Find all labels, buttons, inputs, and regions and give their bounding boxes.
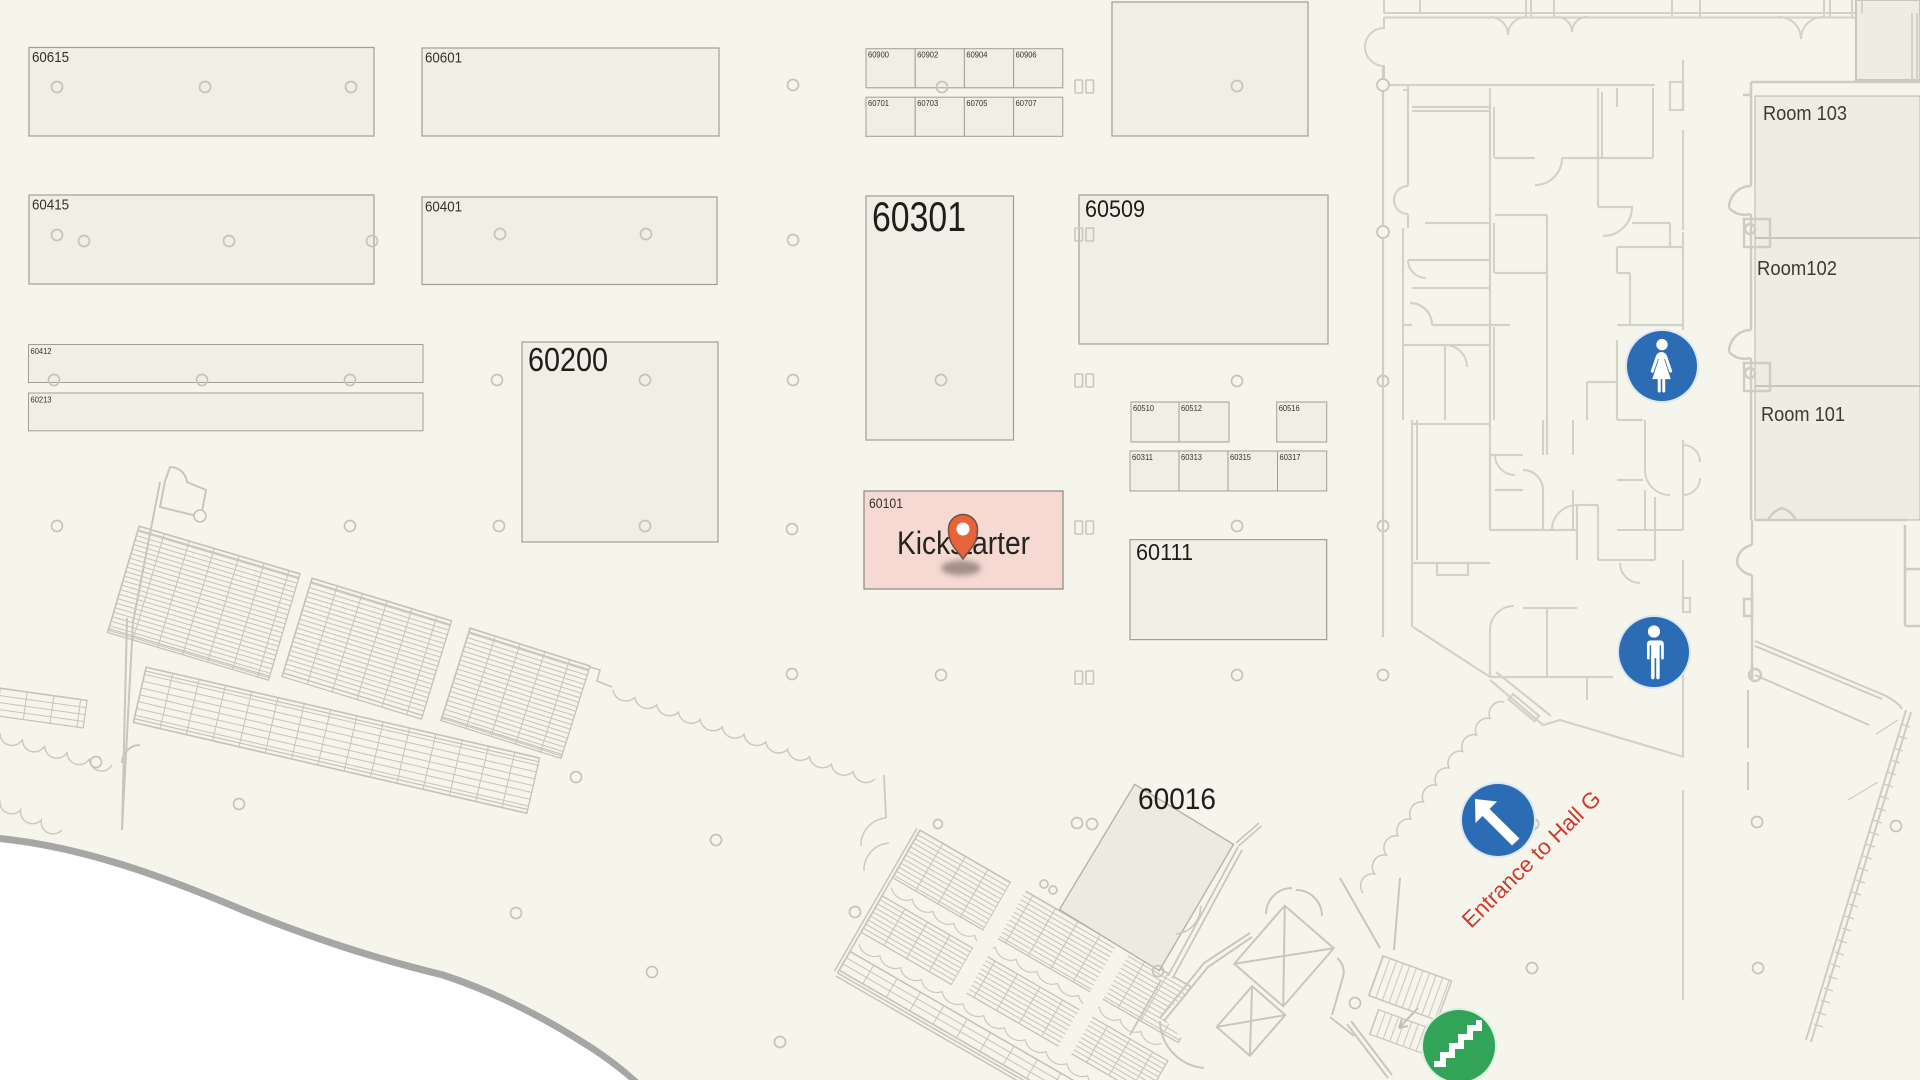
svg-text:60900: 60900 [868, 50, 889, 60]
svg-text:60701: 60701 [868, 98, 889, 108]
svg-text:60509: 60509 [1085, 196, 1145, 223]
svg-text:Room102: Room102 [1757, 258, 1837, 280]
svg-text:60016: 60016 [1138, 783, 1216, 816]
svg-text:60705: 60705 [966, 98, 987, 108]
svg-text:60412: 60412 [31, 346, 52, 356]
svg-text:60315: 60315 [1230, 452, 1251, 462]
svg-text:60510: 60510 [1133, 403, 1154, 413]
svg-text:60904: 60904 [966, 50, 987, 60]
svg-text:60311: 60311 [1132, 452, 1153, 462]
svg-text:60703: 60703 [917, 98, 938, 108]
svg-text:60516: 60516 [1279, 403, 1300, 413]
svg-text:60902: 60902 [917, 50, 938, 60]
svg-text:60906: 60906 [1016, 50, 1037, 60]
svg-text:Room 103: Room 103 [1763, 103, 1847, 125]
svg-text:60707: 60707 [1016, 98, 1037, 108]
svg-text:60313: 60313 [1181, 452, 1202, 462]
svg-text:60200: 60200 [528, 341, 608, 378]
svg-text:60615: 60615 [32, 49, 69, 66]
svg-text:60512: 60512 [1181, 403, 1202, 413]
svg-text:60101: 60101 [869, 496, 903, 511]
svg-text:Room 101: Room 101 [1761, 404, 1845, 426]
svg-text:60301: 60301 [872, 193, 966, 240]
svg-text:60213: 60213 [31, 395, 52, 405]
svg-text:60111: 60111 [1136, 539, 1193, 565]
svg-text:60601: 60601 [425, 50, 462, 67]
svg-text:60317: 60317 [1280, 452, 1301, 462]
svg-text:60401: 60401 [425, 199, 462, 216]
svg-text:60415: 60415 [32, 197, 69, 214]
